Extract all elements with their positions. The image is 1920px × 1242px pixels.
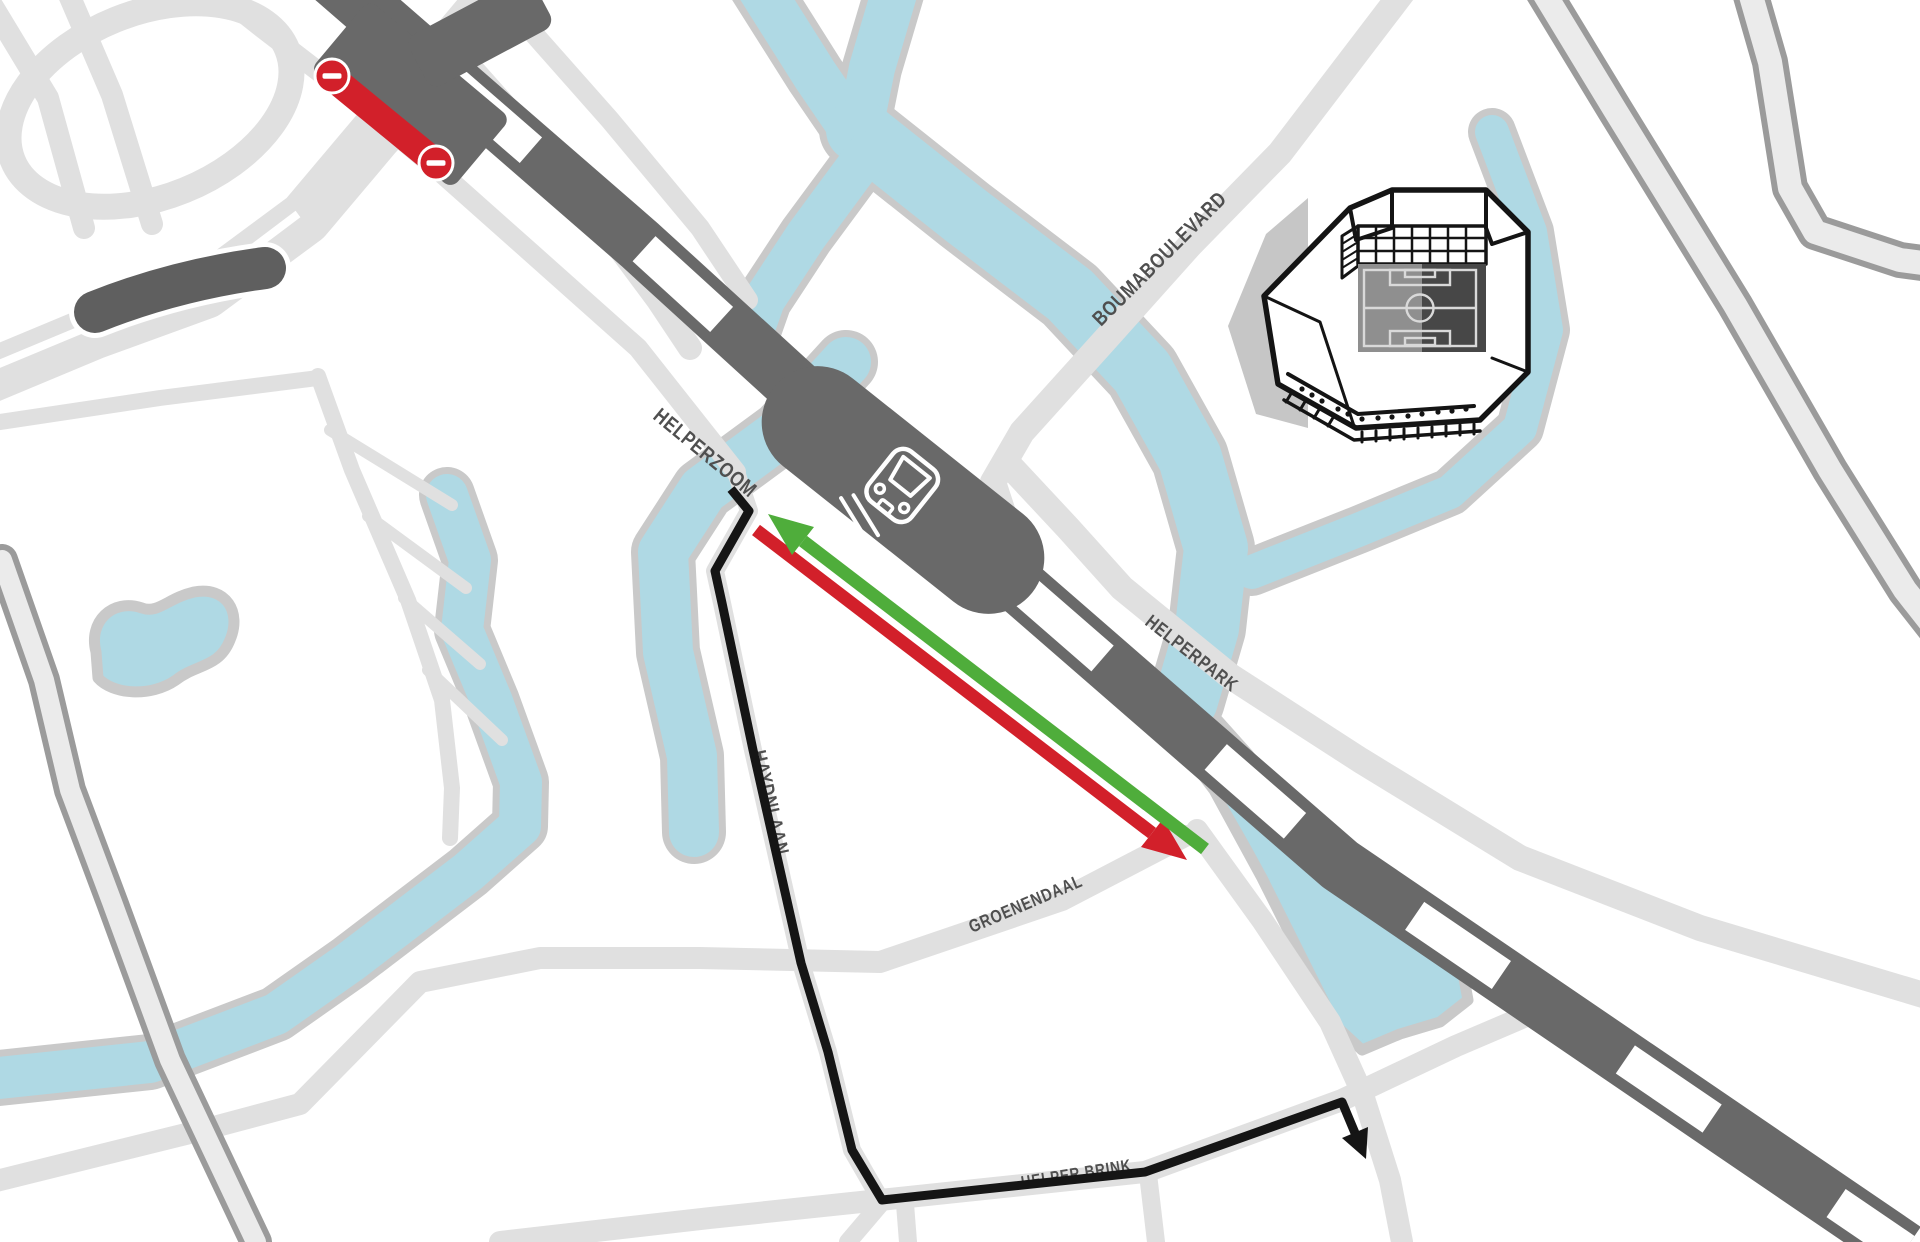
map-svg: HELPERZOOM BOUMABOULEVARD HELPERPARK HAY… xyxy=(0,0,1920,1242)
road-stub-2 xyxy=(905,1204,908,1242)
road-stub-1 xyxy=(1148,1174,1156,1242)
stadium-illustration xyxy=(1228,190,1528,442)
no-entry-bar xyxy=(323,73,342,79)
road-field-access xyxy=(0,378,318,425)
road-allotment-rail xyxy=(318,376,452,838)
map-canvas: HELPERZOOM BOUMABOULEVARD HELPERPARK HAY… xyxy=(0,0,1920,1242)
road-groenendaal xyxy=(0,836,1185,1185)
no-entry-icon xyxy=(315,59,349,93)
highway-northeast xyxy=(1745,0,1920,268)
no-entry-bar xyxy=(427,160,446,166)
pond-small xyxy=(94,591,234,692)
no-entry-icon xyxy=(419,146,453,180)
street-label-boumaboulevard: BOUMABOULEVARD xyxy=(1089,187,1232,330)
road-bridge-block xyxy=(95,268,265,312)
highway-east-casing xyxy=(1533,0,1920,660)
